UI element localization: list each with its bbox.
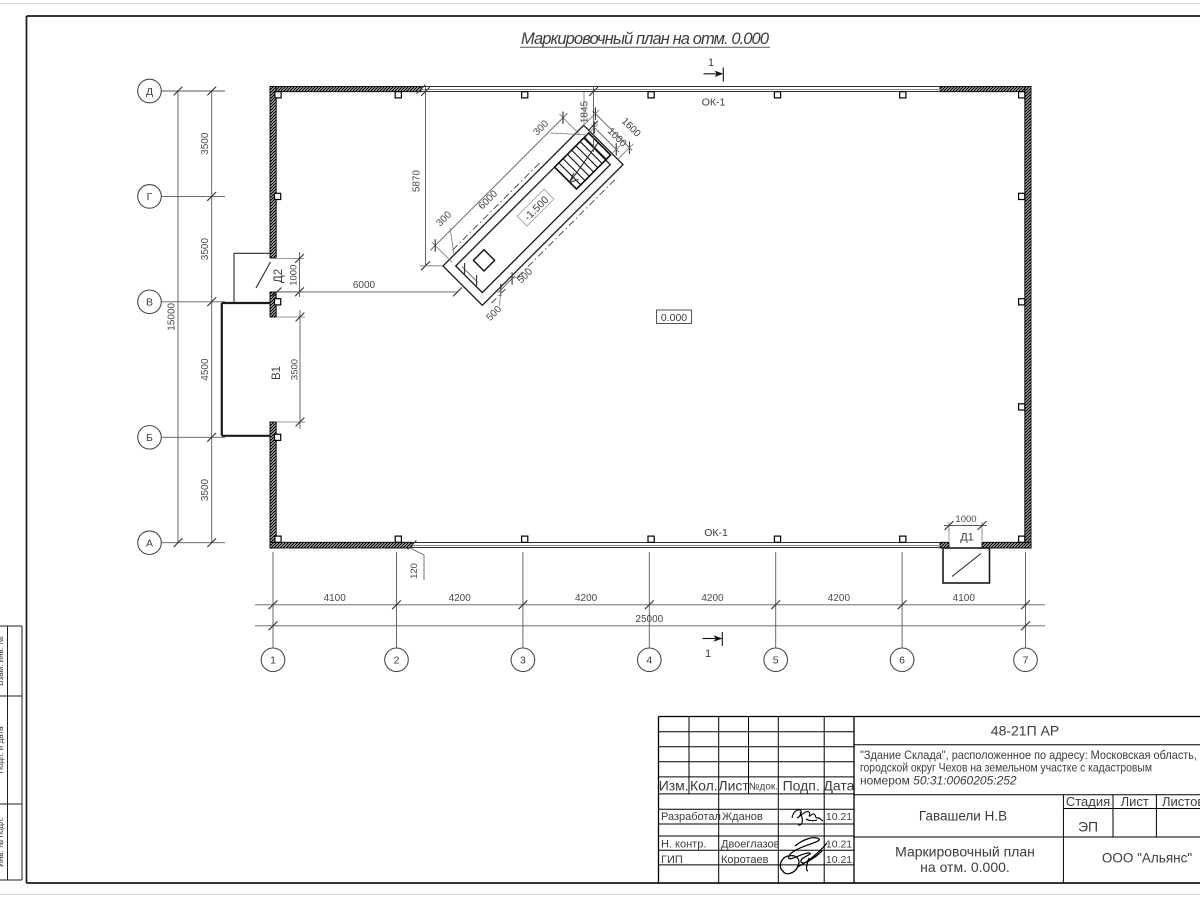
svg-text:Разработал: Разработал xyxy=(661,811,721,823)
svg-text:Г: Г xyxy=(147,191,153,203)
svg-text:ГИП: ГИП xyxy=(661,854,683,866)
svg-text:2: 2 xyxy=(394,655,400,667)
svg-text:В: В xyxy=(146,297,153,309)
svg-text:4200: 4200 xyxy=(701,593,724,604)
svg-text:4200: 4200 xyxy=(449,593,472,604)
svg-text:Подп. и дата: Подп. и дата xyxy=(0,726,5,774)
svg-text:3500: 3500 xyxy=(290,359,301,380)
svg-text:номером 50:31:0060205:252: номером 50:31:0060205:252 xyxy=(860,773,1017,787)
svg-text:Взам. инв. №: Взам. инв. № xyxy=(0,636,5,686)
svg-text:4200: 4200 xyxy=(828,593,851,604)
svg-text:1: 1 xyxy=(270,655,276,667)
svg-text:15000: 15000 xyxy=(167,302,178,330)
svg-text:4100: 4100 xyxy=(324,593,347,604)
svg-text:Маркировочный план на отм. 0.0: Маркировочный план на отм. 0.000 xyxy=(521,30,770,48)
svg-text:1: 1 xyxy=(705,648,711,660)
svg-text:ООО "Альянс": ООО "Альянс" xyxy=(1102,851,1192,866)
svg-text:Маркировочный план: Маркировочный план xyxy=(895,844,1035,860)
svg-text:Инв. № подл.: Инв. № подл. xyxy=(0,817,5,867)
svg-text:Коротаев: Коротаев xyxy=(721,854,769,866)
svg-text:Д2: Д2 xyxy=(273,269,285,283)
svg-text:4: 4 xyxy=(646,655,652,667)
svg-text:Жданов: Жданов xyxy=(722,811,763,823)
svg-text:Изм.: Изм. xyxy=(659,778,689,794)
svg-text:120: 120 xyxy=(409,563,420,579)
svg-text:25000: 25000 xyxy=(635,614,663,625)
svg-text:Кол.: Кол. xyxy=(690,778,718,794)
svg-text:4100: 4100 xyxy=(953,593,976,604)
svg-text:Гавашели Н.В: Гавашели Н.В xyxy=(919,809,1007,824)
svg-text:5870: 5870 xyxy=(412,169,423,192)
svg-text:1000: 1000 xyxy=(289,265,300,286)
svg-text:Д1: Д1 xyxy=(960,532,974,544)
svg-text:48-21П АР: 48-21П АР xyxy=(991,723,1059,739)
svg-text:0.000: 0.000 xyxy=(661,312,687,324)
svg-text:6: 6 xyxy=(899,655,905,667)
svg-text:10.21: 10.21 xyxy=(826,854,852,866)
svg-text:ОК-1: ОК-1 xyxy=(702,97,726,109)
svg-text:Н. контр.: Н. контр. xyxy=(661,839,706,851)
svg-text:А: А xyxy=(146,538,153,550)
svg-text:Д: Д xyxy=(146,86,153,98)
svg-text:Лист: Лист xyxy=(718,778,749,794)
svg-text:10.21: 10.21 xyxy=(826,811,852,823)
svg-text:ОК-1: ОК-1 xyxy=(704,527,728,539)
svg-text:1845: 1845 xyxy=(580,100,591,123)
svg-text:Лист: Лист xyxy=(1121,794,1149,809)
svg-text:6000: 6000 xyxy=(353,280,376,291)
svg-text:1000: 1000 xyxy=(955,514,976,525)
svg-text:7: 7 xyxy=(1023,655,1029,667)
svg-text:В1: В1 xyxy=(271,366,283,380)
svg-text:Б: Б xyxy=(146,432,153,444)
svg-text:№док.: №док. xyxy=(749,782,778,793)
svg-text:Подп.: Подп. xyxy=(783,778,820,794)
svg-text:10.21: 10.21 xyxy=(826,839,852,851)
svg-text:5: 5 xyxy=(773,655,779,667)
svg-text:4500: 4500 xyxy=(200,358,211,381)
svg-text:3: 3 xyxy=(520,655,526,667)
svg-text:Стадия: Стадия xyxy=(1066,794,1110,809)
svg-text:4200: 4200 xyxy=(575,593,598,604)
svg-text:Дата: Дата xyxy=(823,778,854,794)
svg-text:3500: 3500 xyxy=(200,478,211,501)
svg-text:ЭП: ЭП xyxy=(1078,819,1098,835)
svg-text:Листов: Листов xyxy=(1162,794,1200,809)
svg-text:3500: 3500 xyxy=(200,238,211,261)
svg-text:Двоеглазов: Двоеглазов xyxy=(721,839,780,851)
svg-text:1: 1 xyxy=(708,57,714,69)
svg-text:3500: 3500 xyxy=(200,132,211,155)
svg-text:на отм. 0.000.: на отм. 0.000. xyxy=(920,859,1010,875)
